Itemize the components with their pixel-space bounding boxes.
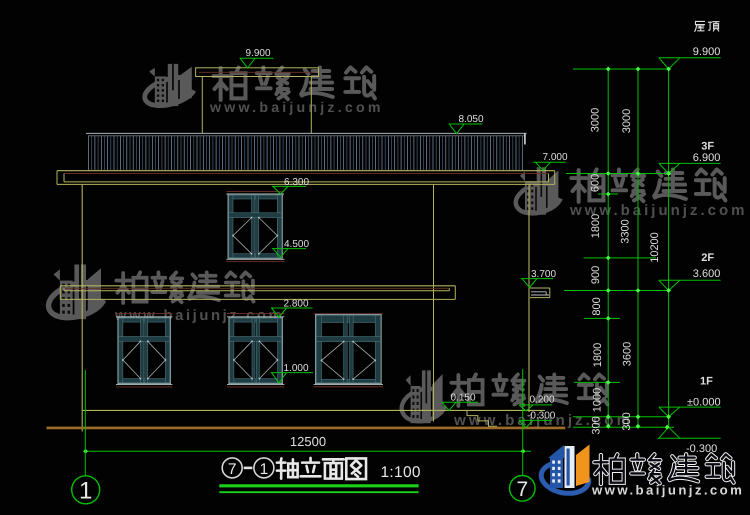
svg-text:12500: 12500 bbox=[290, 434, 326, 449]
svg-text:9.900: 9.900 bbox=[693, 46, 721, 58]
svg-text:3600: 3600 bbox=[622, 342, 634, 366]
svg-text:2.800: 2.800 bbox=[284, 299, 309, 310]
svg-text:4.500: 4.500 bbox=[284, 239, 309, 250]
svg-text:1800: 1800 bbox=[592, 343, 604, 367]
svg-text:1.000: 1.000 bbox=[284, 363, 309, 374]
svg-text:3300: 3300 bbox=[620, 219, 632, 243]
svg-text:3.600: 3.600 bbox=[693, 268, 721, 280]
svg-text:1800: 1800 bbox=[590, 214, 602, 238]
svg-text:7: 7 bbox=[228, 461, 237, 478]
svg-text:1: 1 bbox=[79, 477, 92, 504]
svg-text:www.baijunjz.com: www.baijunjz.com bbox=[591, 483, 744, 498]
svg-text:6.900: 6.900 bbox=[693, 152, 721, 164]
svg-text:0.150: 0.150 bbox=[451, 393, 476, 404]
svg-text:3000: 3000 bbox=[621, 109, 633, 133]
svg-text:3.700: 3.700 bbox=[531, 269, 556, 280]
svg-text:1: 1 bbox=[260, 461, 269, 478]
svg-text:10200: 10200 bbox=[649, 232, 661, 263]
svg-text:2F: 2F bbox=[701, 252, 714, 264]
svg-text:1F: 1F bbox=[700, 376, 713, 388]
svg-text:3F: 3F bbox=[701, 141, 714, 153]
svg-text:900: 900 bbox=[590, 266, 602, 284]
svg-text:www.baijunjz.com: www.baijunjz.com bbox=[209, 100, 384, 116]
svg-text:9.900: 9.900 bbox=[246, 48, 271, 59]
svg-text:6.300: 6.300 bbox=[284, 177, 309, 188]
svg-text:300: 300 bbox=[621, 412, 633, 430]
svg-text:-0.300: -0.300 bbox=[527, 411, 556, 422]
svg-text:1000: 1000 bbox=[592, 388, 604, 412]
svg-text:0.200: 0.200 bbox=[530, 395, 555, 406]
svg-text:3000: 3000 bbox=[590, 108, 602, 132]
svg-text:600: 600 bbox=[589, 174, 601, 192]
svg-text:300: 300 bbox=[591, 416, 603, 434]
svg-text:7: 7 bbox=[516, 478, 528, 501]
svg-text:±0.000: ±0.000 bbox=[687, 397, 721, 409]
svg-text:1:100: 1:100 bbox=[381, 464, 421, 481]
svg-text:7.000: 7.000 bbox=[543, 152, 568, 163]
svg-text:800: 800 bbox=[591, 297, 603, 315]
svg-text:8.050: 8.050 bbox=[459, 114, 484, 125]
